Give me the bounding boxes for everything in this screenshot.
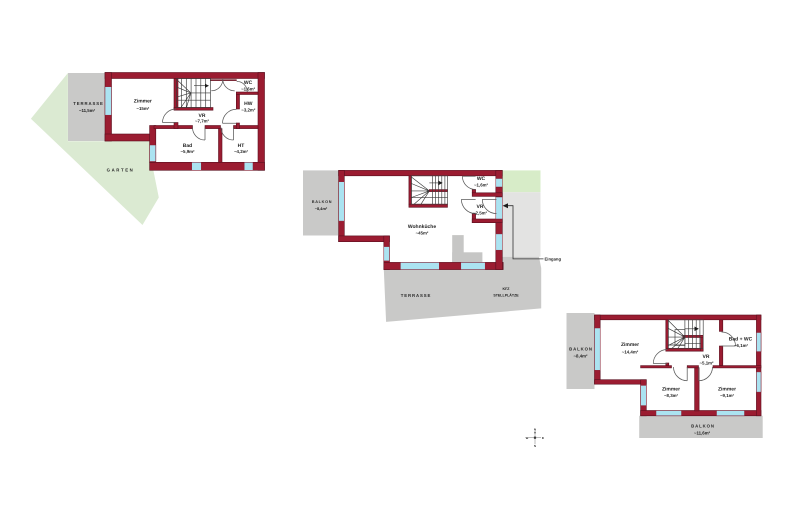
svg-text:BALKON: BALKON: [312, 200, 332, 204]
svg-text:Zimmer: Zimmer: [621, 342, 639, 348]
svg-text:~9,1m²: ~9,1m²: [720, 393, 735, 398]
svg-text:~7,7m²: ~7,7m²: [195, 118, 210, 123]
svg-text:~3,2m²: ~3,2m²: [241, 108, 256, 113]
svg-text:KFZ: KFZ: [503, 287, 511, 291]
svg-text:Bad + WC: Bad + WC: [729, 337, 753, 343]
svg-text:GARTEN: GARTEN: [107, 168, 135, 173]
svg-text:~1,6m²: ~1,6m²: [241, 86, 256, 91]
svg-text:Zimmer: Zimmer: [662, 387, 680, 393]
svg-text:~11,5m²: ~11,5m²: [79, 108, 96, 113]
svg-text:TERRASSE: TERRASSE: [73, 101, 104, 106]
svg-text:TERRASSE: TERRASSE: [401, 293, 432, 298]
svg-text:~8,4m²: ~8,4m²: [315, 206, 328, 211]
svg-text:~14,4m²: ~14,4m²: [622, 350, 639, 355]
svg-text:BALKON: BALKON: [691, 424, 715, 429]
svg-text:S: S: [534, 444, 536, 448]
svg-text:STELLPLÄTZE: STELLPLÄTZE: [493, 292, 519, 297]
svg-text:Wohnküche: Wohnküche: [408, 224, 436, 230]
svg-text:WC: WC: [477, 176, 486, 182]
svg-text:~15m²: ~15m²: [136, 106, 149, 111]
svg-text:~5,9m²: ~5,9m²: [180, 149, 195, 154]
svg-text:Eingang: Eingang: [545, 257, 562, 262]
svg-text:VR: VR: [477, 204, 484, 210]
svg-text:~2,5m²: ~2,5m²: [473, 210, 488, 215]
svg-text:~6,1m²: ~6,1m²: [734, 343, 749, 348]
svg-text:W: W: [526, 436, 529, 440]
svg-text:Zimmer: Zimmer: [718, 387, 736, 393]
svg-text:VR: VR: [703, 354, 710, 360]
svg-text:~4,2m²: ~4,2m²: [234, 149, 249, 154]
svg-text:Zimmer: Zimmer: [134, 99, 152, 105]
svg-text:BALKON: BALKON: [569, 347, 593, 352]
svg-text:~5,1m²: ~5,1m²: [699, 361, 714, 366]
svg-text:HW: HW: [244, 101, 253, 107]
svg-text:~45m²: ~45m²: [416, 230, 429, 235]
svg-text:~8,3m²: ~8,3m²: [664, 393, 679, 398]
svg-text:E: E: [542, 436, 544, 440]
svg-text:~1,6m²: ~1,6m²: [474, 183, 489, 188]
svg-text:WC: WC: [244, 80, 253, 86]
svg-text:~11,6m²: ~11,6m²: [694, 431, 711, 436]
svg-text:~8,4m²: ~8,4m²: [573, 354, 588, 359]
svg-text:N: N: [534, 428, 536, 432]
